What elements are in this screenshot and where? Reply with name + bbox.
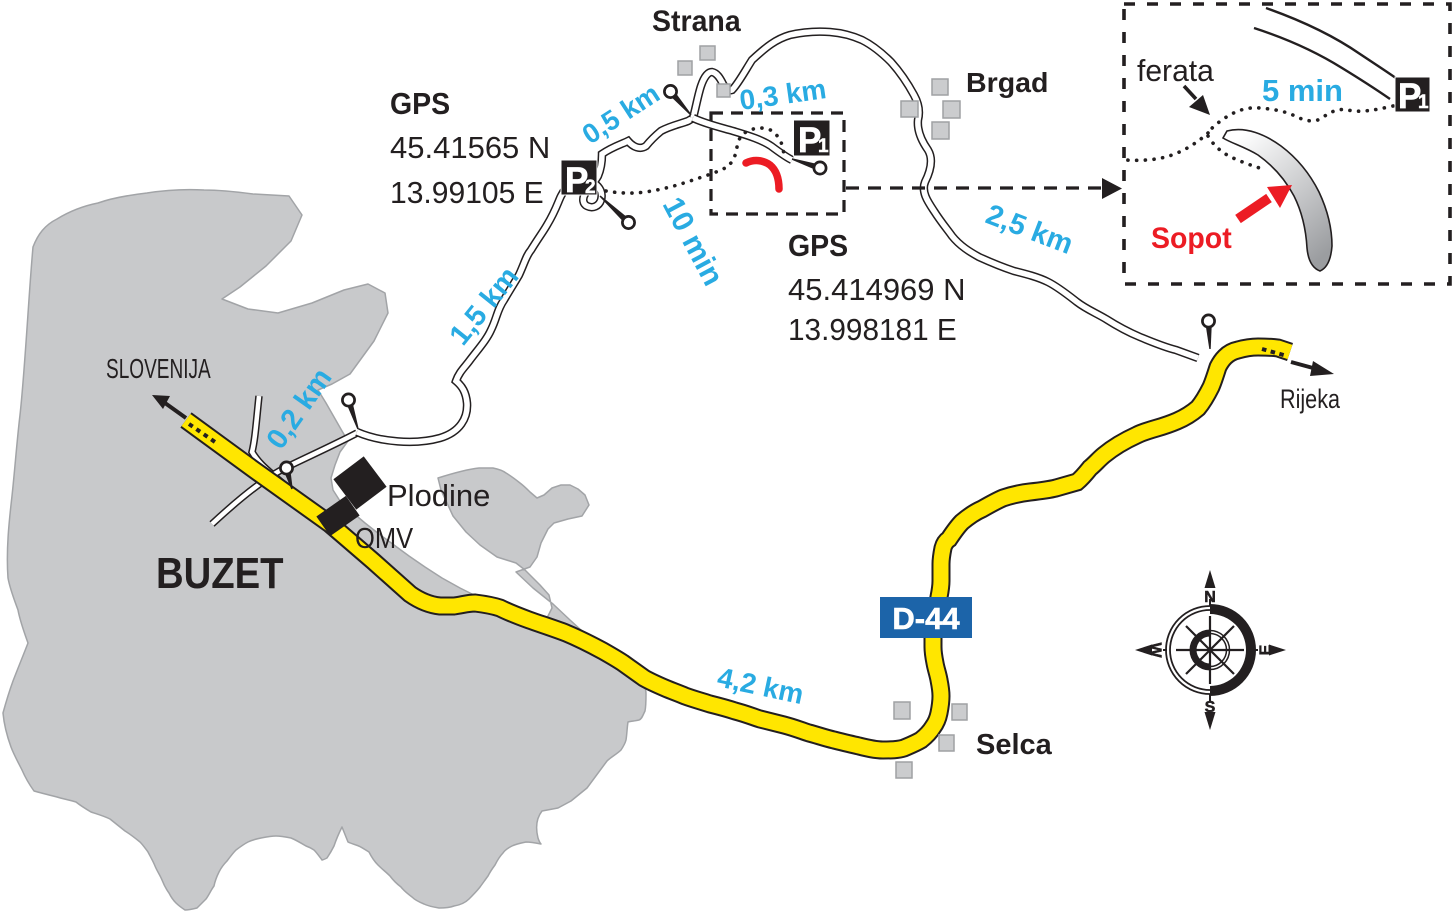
svg-text:13.998181 E: 13.998181 E [788, 312, 957, 347]
svg-text:0,3 km: 0,3 km [738, 73, 829, 116]
svg-text:OMV: OMV [355, 521, 414, 554]
svg-text:5 min: 5 min [1262, 73, 1343, 108]
svg-text:E: E [1258, 644, 1275, 655]
svg-text:1: 1 [818, 136, 829, 157]
svg-text:GPS: GPS [788, 229, 848, 263]
svg-text:1: 1 [1418, 92, 1429, 113]
svg-text:45.414969 N: 45.414969 N [788, 272, 966, 307]
svg-text:Plodine: Plodine [387, 478, 490, 513]
svg-text:SLOVENIJA: SLOVENIJA [106, 353, 211, 385]
svg-text:BUZET: BUZET [156, 549, 284, 598]
svg-text:13.99105 E: 13.99105 E [390, 176, 544, 211]
svg-text:W: W [1147, 642, 1164, 658]
svg-text:S: S [1205, 699, 1216, 716]
svg-text:N: N [1204, 589, 1216, 606]
svg-text:GPS: GPS [390, 87, 450, 121]
svg-text:Brgad: Brgad [966, 66, 1048, 98]
svg-text:D-44: D-44 [892, 601, 960, 636]
svg-text:Sopot: Sopot [1151, 222, 1232, 255]
svg-text:Strana: Strana [652, 5, 741, 38]
svg-text:ferata: ferata [1137, 54, 1214, 89]
svg-text:45.41565 N: 45.41565 N [390, 130, 550, 165]
svg-text:2,5 km: 2,5 km [981, 199, 1077, 261]
svg-text:10 min: 10 min [656, 192, 730, 291]
svg-text:Selca: Selca [976, 729, 1053, 761]
svg-text:Rijeka: Rijeka [1280, 385, 1340, 415]
svg-text:2: 2 [585, 177, 596, 198]
